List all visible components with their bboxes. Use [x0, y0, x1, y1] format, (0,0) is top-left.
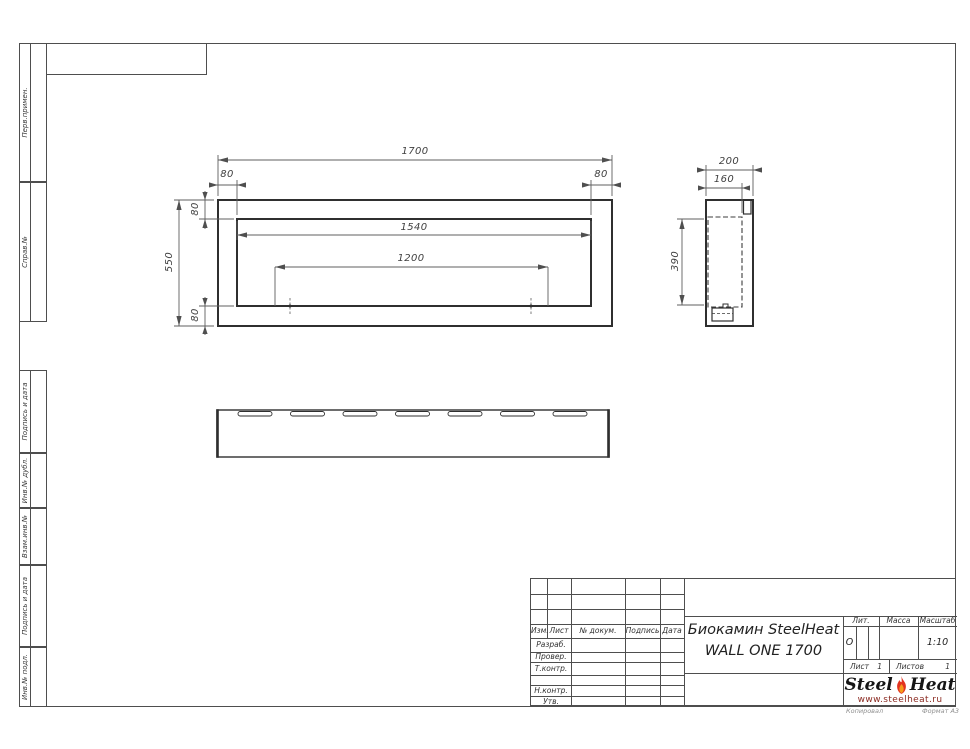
role-nkontr: Н.контр.	[531, 685, 571, 696]
title-block: Изм. Лист № докум. Подпись Дата Разраб. …	[530, 578, 956, 706]
grid-line	[856, 626, 857, 659]
side-graph-podpis-data-1: Подпись и дата	[19, 370, 47, 453]
grid-line	[531, 675, 684, 676]
side-label: Инв.№ подл.	[20, 648, 31, 706]
logo-steel-text: Steel	[845, 676, 893, 694]
dim-label-1200: 1200	[389, 253, 433, 265]
side-graph-inv-dubl: Инв.№ дубл.	[19, 453, 47, 508]
footer-copied: Копировал	[846, 707, 883, 715]
rev-header-docnum: № докум.	[571, 624, 625, 638]
flame-icon	[894, 676, 909, 695]
rev-header-list: Лист	[547, 624, 571, 638]
side-label: Перв.примен.	[20, 44, 31, 181]
role-razrab: Разраб.	[531, 638, 571, 652]
role-prover: Провер.	[531, 652, 571, 662]
dim-label-80-vert-top: 80	[190, 187, 202, 231]
dim-label-550: 550	[164, 240, 176, 284]
rev-header-podpis: Подпись	[625, 624, 660, 638]
drawing-sheet: Перв.примен. Справ.№ Подпись и дата Инв.…	[0, 0, 970, 749]
logo-heat-text: Heat	[910, 676, 956, 694]
dim-label-80-top-right: 80	[579, 169, 623, 181]
role-utv: Утв.	[531, 696, 571, 707]
grid-line	[571, 579, 572, 707]
dim-label-1700: 1700	[393, 146, 437, 158]
dim-label-1540: 1540	[392, 222, 436, 234]
rev-header-data: Дата	[660, 624, 684, 638]
side-graph-inv-podl: Инв.№ подл.	[19, 647, 47, 707]
dim-label-80-top-left: 80	[205, 169, 249, 181]
rev-header-izm: Изм.	[531, 624, 547, 638]
footer-format: Формат А3	[922, 707, 959, 715]
grid-line	[531, 594, 684, 595]
dim-label-160: 160	[702, 174, 746, 186]
scale-header: Масштаб	[918, 616, 957, 626]
sheets-value: 1	[945, 662, 950, 671]
side-graph-perv-primen: Перв.примен.	[19, 43, 47, 182]
side-graph-podpis-data-2: Подпись и дата	[19, 565, 47, 647]
sheet-value: 1	[877, 662, 882, 671]
sheets-label: Листов	[896, 662, 924, 671]
logo-url: www.steelheat.ru	[858, 695, 943, 705]
side-label: Подпись и дата	[20, 371, 31, 452]
sheet-cell: Лист 1	[843, 659, 889, 673]
sheet-label: Лист	[850, 662, 869, 671]
dim-label-80-vert-bottom: 80	[190, 293, 202, 337]
grid-line	[868, 626, 869, 659]
side-label: Справ.№	[20, 183, 31, 321]
side-graph-vzam-inv: Взам.инв.№	[19, 508, 47, 565]
logo-row: Steel Heat	[845, 676, 956, 695]
lit-header: Лит.	[843, 616, 879, 626]
product-name-line2: WALL ONE 1700	[684, 641, 843, 661]
side-label: Подпись и дата	[20, 566, 31, 646]
lit-value: О	[843, 626, 856, 659]
grid-line	[625, 579, 626, 707]
mass-header: Масса	[879, 616, 918, 626]
company-logo: Steel Heat www.steelheat.ru	[843, 673, 957, 707]
role-tkontr: Т.контр.	[531, 662, 571, 675]
dim-label-390: 390	[670, 239, 682, 283]
scale-value: 1:10	[918, 626, 957, 659]
side-label: Инв.№ дубл.	[20, 454, 31, 507]
grid-line	[531, 609, 684, 610]
top-left-designation-box	[47, 43, 207, 75]
dim-label-200: 200	[707, 156, 751, 168]
grid-line	[660, 579, 661, 707]
product-name-line1: Биокамин SteelHeat	[684, 619, 843, 641]
side-label: Взам.инв.№	[20, 509, 31, 564]
side-graph-sprav-no: Справ.№	[19, 182, 47, 322]
sheets-cell: Листов 1	[889, 659, 957, 673]
